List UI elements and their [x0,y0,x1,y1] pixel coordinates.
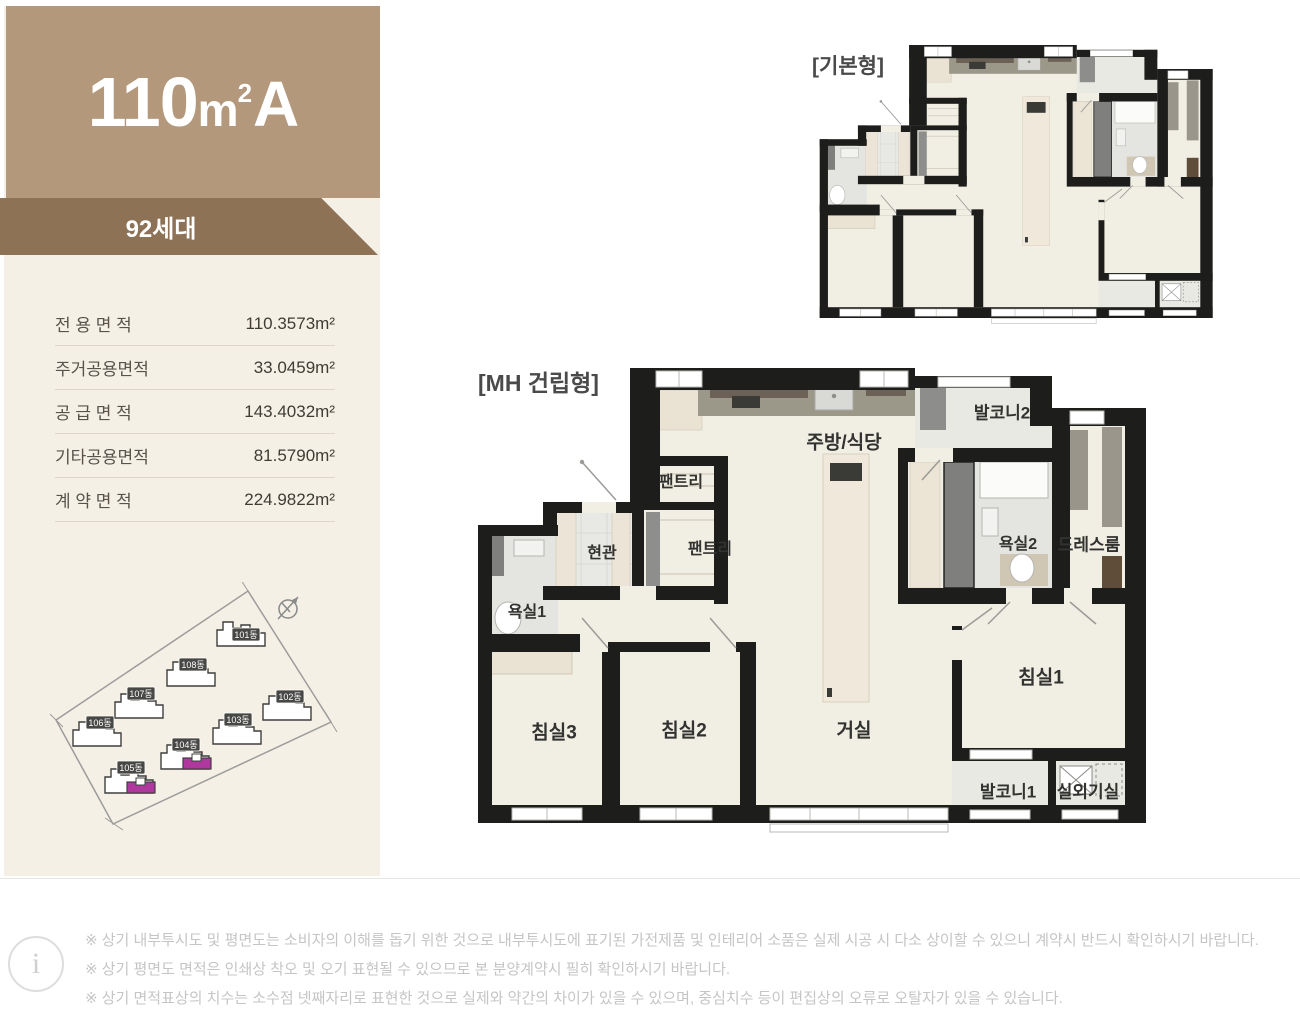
row-value: 143.4032m² [244,402,335,422]
building-label: 104동 [174,740,197,750]
compass-icon [278,597,298,619]
disclaimer-line: ※ 상기 면적표상의 치수는 소수점 넷째자리로 표현한 것으로 실제와 약간의… [85,984,1285,1013]
row-label: 계 약 면 적 [55,487,132,512]
unit-area-unit: m [198,83,238,137]
row-label: 기타공용면적 [55,443,149,468]
row-value: 33.0459m² [254,358,335,378]
table-row: 기타공용면적 81.5790m² [55,434,335,478]
building-label: 106동 [88,718,111,728]
site-plan: 101동 108동 107동 106동 102동 103동 [45,582,345,832]
building-label: 107동 [129,689,152,699]
building-101: 101동 [217,622,265,646]
building-label: 105동 [119,763,142,773]
unit-area-sup: 2 [238,78,251,109]
row-value: 110.3573m² [246,314,335,334]
footer-divider [0,878,1300,879]
table-row: 공 급 면 적 143.4032m² [55,390,335,434]
floorplan-mh [470,368,1150,838]
building-105-highlighted: 105동 [105,761,155,793]
info-glyph: i [32,947,40,981]
disclaimer-line: ※ 상기 내부투시도 및 평면도는 소비자의 이해를 돕기 위한 것으로 내부투… [85,926,1285,955]
building-104-highlighted: 104동 [161,738,211,769]
building-label: 102동 [278,692,301,702]
building-label: 101동 [234,630,257,640]
row-label: 전 용 면 적 [55,311,132,336]
building-label: 103동 [226,715,249,725]
brochure-page: 110 m 2 A 92세대 전 용 면 적 110.3573m² 주거공용면적… [0,0,1300,1029]
building-102: 102동 [263,690,311,720]
building-107: 107동 [115,687,163,718]
table-row: 주거공용면적 33.0459m² [55,346,335,390]
row-label: 공 급 면 적 [55,399,132,424]
unit-area-number: 110 [88,62,198,142]
row-value: 224.9822m² [244,490,335,510]
info-icon: i [8,936,64,992]
households-ribbon: 92세대 [0,198,378,255]
disclaimer-block: ※ 상기 내부투시도 및 평면도는 소비자의 이해를 돕기 위한 것으로 내부투… [85,926,1285,1013]
row-value: 81.5790m² [254,446,335,466]
floorplan-basic [815,45,1215,327]
building-103: 103동 [213,713,261,744]
area-table: 전 용 면 적 110.3573m² 주거공용면적 33.0459m² 공 급 … [55,302,335,522]
building-106: 106동 [73,716,121,746]
households-count: 92세대 [126,209,197,244]
building-label: 108동 [181,660,204,670]
unit-title: 110 m 2 A [88,62,299,142]
table-row: 전 용 면 적 110.3573m² [55,302,335,346]
table-row: 계 약 면 적 224.9822m² [55,478,335,522]
building-108: 108동 [167,658,215,686]
unit-type-letter: A [253,67,298,141]
unit-title-block: 110 m 2 A [6,6,380,198]
row-label: 주거공용면적 [55,355,149,380]
disclaimer-line: ※ 상기 평면도 면적은 인쇄상 착오 및 오기 표현될 수 있으므로 본 분양… [85,955,1285,984]
